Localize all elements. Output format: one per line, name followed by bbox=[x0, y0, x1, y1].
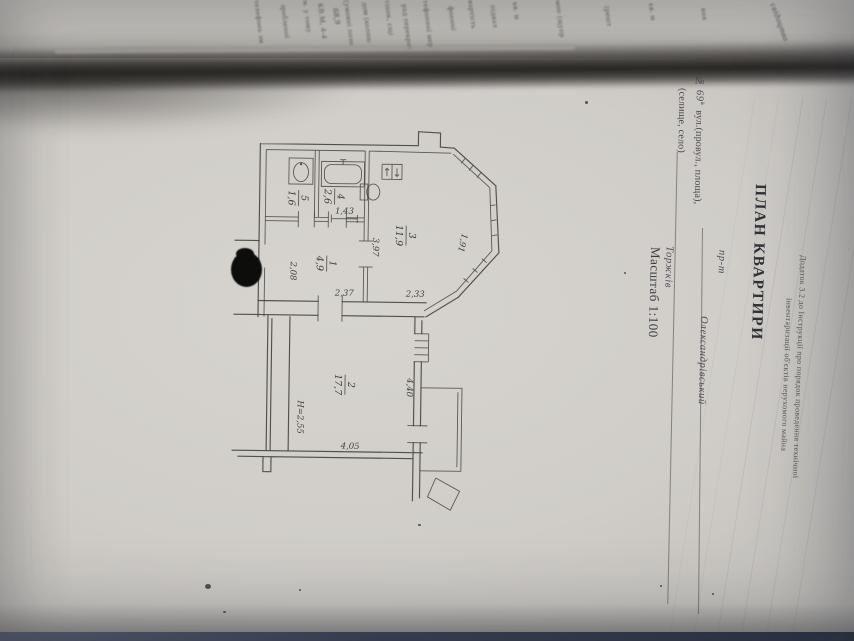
ink-speck bbox=[624, 272, 626, 274]
facing-text-fragment: вартість bbox=[466, 0, 478, 29]
show-through-line bbox=[767, 98, 852, 632]
room-number: 2 bbox=[345, 381, 356, 388]
address-line2-label: (селище, село) bbox=[675, 88, 687, 153]
facing-text-fragment: (решт bbox=[603, 6, 614, 28]
plan-lower-walls bbox=[231, 240, 427, 501]
page-bottom-shade bbox=[0, 604, 854, 634]
street-prefix-handwritten: пр-т bbox=[716, 250, 728, 274]
toilet-symbol bbox=[360, 184, 380, 200]
scale-label: Масштаб 1:100 bbox=[645, 247, 663, 338]
room-number: 1 bbox=[327, 260, 338, 266]
facing-text-fragment: тефонної мер bbox=[421, 0, 436, 48]
room-label-1: 1 4,9 bbox=[314, 255, 338, 272]
room-number: 5 bbox=[299, 195, 310, 201]
appendix-note-line1: Додаток 3.2 до Інструкції про порядок пр… bbox=[791, 255, 808, 479]
dim-2-37: 2,37 bbox=[334, 289, 355, 299]
facing-text-fragment: КВ.М, 4-4 bbox=[316, 3, 329, 40]
street-type-label: вул.(провул., площа), bbox=[692, 110, 705, 204]
book-photo: телефонь зм зробленої м. у тому КВ.М, 4-… bbox=[0, 0, 854, 641]
address-rule2 bbox=[667, 152, 677, 604]
facing-text-fragment: зробленої bbox=[279, 4, 292, 39]
facing-text-fragment: мон (щупр bbox=[554, 0, 568, 38]
balcony-symbol bbox=[420, 388, 462, 472]
facing-text-fragment: вня bbox=[699, 7, 709, 20]
house-number-handwritten: 69 bbox=[694, 90, 705, 102]
table-edge bbox=[0, 632, 854, 641]
room-number: 4 bbox=[335, 193, 346, 200]
appendix-note-line2: інвентаризації об'єктів нерухомого майна bbox=[779, 298, 793, 451]
facing-text-fragment: телефонь зм bbox=[252, 0, 266, 44]
ink-blot bbox=[236, 248, 254, 260]
ink-speck bbox=[712, 593, 714, 595]
facing-handwritten-fragment: свідоцтво bbox=[768, 2, 791, 43]
show-through-line bbox=[670, 98, 755, 632]
room-label-3: 3 11,9 bbox=[393, 225, 417, 246]
ink-speck bbox=[585, 101, 588, 104]
bathtub-symbol bbox=[321, 159, 364, 187]
dim-height: Н=2,55 bbox=[294, 399, 304, 434]
facing-text-fragment: кв. м bbox=[511, 2, 522, 21]
window-symbol bbox=[414, 334, 428, 362]
facing-text-fragment: підвал bbox=[489, 5, 501, 29]
room-area: 17,7 bbox=[332, 374, 343, 396]
door-jamb-ticks bbox=[295, 211, 430, 443]
sink-symbol bbox=[289, 158, 313, 184]
settlement-handwritten: Торжків bbox=[662, 246, 674, 288]
room-label-4: 4 2,6 bbox=[322, 188, 346, 205]
plan-partitions bbox=[264, 150, 369, 302]
address-line1: № 69а вул.(провул., площа), bbox=[692, 76, 708, 205]
house-number-suffix: а bbox=[699, 102, 707, 105]
facing-handwritten-fragment: 68,9 bbox=[331, 7, 343, 25]
dim-2-33: 2,33 bbox=[405, 290, 425, 300]
dim-2-08: 2,08 bbox=[287, 260, 297, 281]
number-label: № bbox=[694, 76, 705, 87]
dim-1-43: 1,43 bbox=[335, 207, 354, 217]
room-area: 1,6 bbox=[286, 190, 297, 205]
chimney-stub bbox=[427, 478, 459, 510]
facing-text-fragment: (умовні позн bbox=[342, 0, 357, 46]
ink-speck bbox=[418, 524, 421, 526]
room-label-5: 5 1,6 bbox=[286, 190, 310, 206]
room-number: 3 bbox=[406, 233, 417, 239]
facing-text-fragment: м. у тому bbox=[301, 0, 314, 33]
dim-4-05: 4,05 bbox=[340, 442, 360, 452]
dim-1-91: 1,91 bbox=[455, 232, 469, 253]
facing-text-fragment: фонної bbox=[447, 6, 459, 32]
bay-window-ticks bbox=[459, 158, 498, 283]
ink-speck bbox=[205, 584, 211, 589]
floor-plan: 1,43 3,97 2,08 2,37 2,33 1,91 4,40 Н=2,5… bbox=[212, 103, 518, 527]
ink-speck bbox=[299, 589, 301, 591]
room-area: 11,9 bbox=[393, 225, 404, 246]
facing-text-fragment: тінок, сщі bbox=[383, 0, 396, 36]
facing-text-fragment: дом (колиш bbox=[361, 2, 375, 44]
facing-text-fragment: кв. м bbox=[647, 3, 658, 22]
dim-4-40: 4,40 bbox=[404, 377, 414, 398]
room-area: 2,6 bbox=[322, 188, 333, 204]
page-title: ПЛАН КВАРТИРИ bbox=[747, 184, 769, 341]
dim-3-97: 3,97 bbox=[370, 238, 380, 258]
vent-symbol bbox=[382, 164, 402, 179]
room-area: 4,9 bbox=[314, 255, 325, 271]
room-label-2: 2 17,7 bbox=[332, 374, 356, 396]
ink-speck bbox=[660, 585, 662, 587]
street-name-handwritten: Олександрівський bbox=[696, 316, 709, 405]
